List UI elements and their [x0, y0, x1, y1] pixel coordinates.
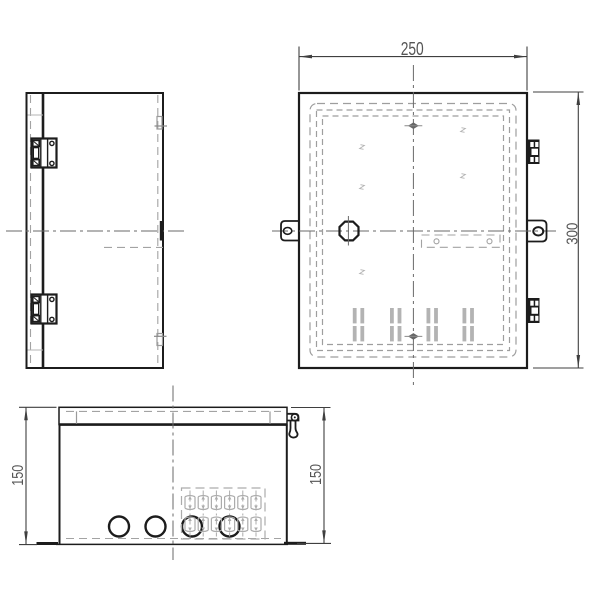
- svg-text:300: 300: [564, 223, 581, 245]
- svg-text:150: 150: [308, 464, 325, 485]
- svg-text:150: 150: [10, 465, 27, 486]
- svg-text:250: 250: [401, 39, 424, 59]
